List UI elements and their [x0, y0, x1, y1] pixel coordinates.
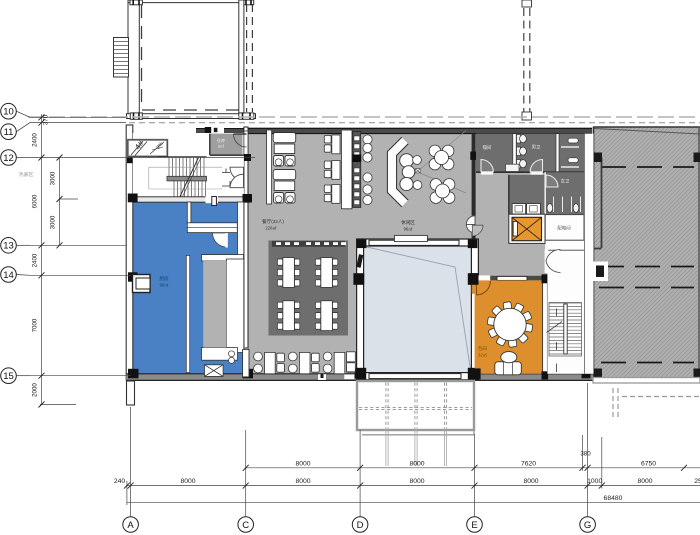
svg-text:G: G: [584, 520, 591, 531]
svg-text:14: 14: [3, 270, 14, 281]
svg-text:90㎡: 90㎡: [160, 282, 170, 288]
svg-text:68480: 68480: [604, 495, 623, 502]
svg-text:12: 12: [3, 153, 14, 164]
svg-text:隔间: 隔间: [483, 144, 492, 151]
svg-text:仓库: 仓库: [217, 137, 225, 144]
svg-text:96㎡: 96㎡: [404, 226, 414, 232]
svg-text:13: 13: [3, 241, 14, 252]
svg-text:餐厅(32人): 餐厅(32人): [262, 218, 284, 225]
svg-text:7620: 7620: [521, 460, 536, 467]
svg-text:2400: 2400: [32, 253, 39, 267]
svg-text:女卫: 女卫: [561, 178, 570, 185]
svg-text:8㎡: 8㎡: [218, 144, 224, 149]
svg-text:240: 240: [114, 478, 126, 485]
svg-text:1000: 1000: [587, 478, 602, 485]
svg-text:8000: 8000: [295, 478, 310, 485]
svg-text:8000: 8000: [409, 460, 424, 467]
svg-text:6000: 6000: [32, 194, 39, 208]
svg-text:8000: 8000: [637, 478, 652, 485]
svg-text:E: E: [471, 520, 477, 531]
svg-text:25: 25: [694, 478, 700, 485]
svg-text:2400: 2400: [32, 133, 39, 147]
svg-text:热廊区: 热廊区: [19, 171, 34, 178]
svg-text:11: 11: [4, 127, 14, 138]
svg-text:15: 15: [3, 371, 14, 382]
svg-text:380: 380: [580, 451, 591, 458]
svg-text:8000: 8000: [409, 478, 424, 485]
svg-text:8000: 8000: [295, 460, 310, 467]
svg-text:10: 10: [3, 107, 14, 118]
svg-text:8000: 8000: [523, 478, 538, 485]
svg-text:厨房: 厨房: [159, 275, 169, 282]
svg-text:包间: 包间: [478, 345, 487, 352]
svg-text:C: C: [242, 520, 249, 531]
svg-text:3000: 3000: [50, 171, 57, 185]
svg-text:3000: 3000: [50, 215, 57, 229]
svg-text:228㎡: 228㎡: [265, 225, 277, 231]
svg-text:370: 370: [43, 114, 50, 125]
svg-text:7000: 7000: [32, 318, 39, 332]
svg-text:2000: 2000: [32, 383, 39, 397]
svg-text:8000: 8000: [180, 478, 195, 485]
svg-text:配电间: 配电间: [557, 225, 570, 232]
svg-text:D: D: [357, 520, 364, 531]
svg-text:32㎡: 32㎡: [478, 352, 488, 358]
svg-text:休闲区: 休闲区: [401, 219, 415, 226]
svg-text:6750: 6750: [641, 460, 656, 467]
svg-text:A: A: [127, 520, 134, 531]
